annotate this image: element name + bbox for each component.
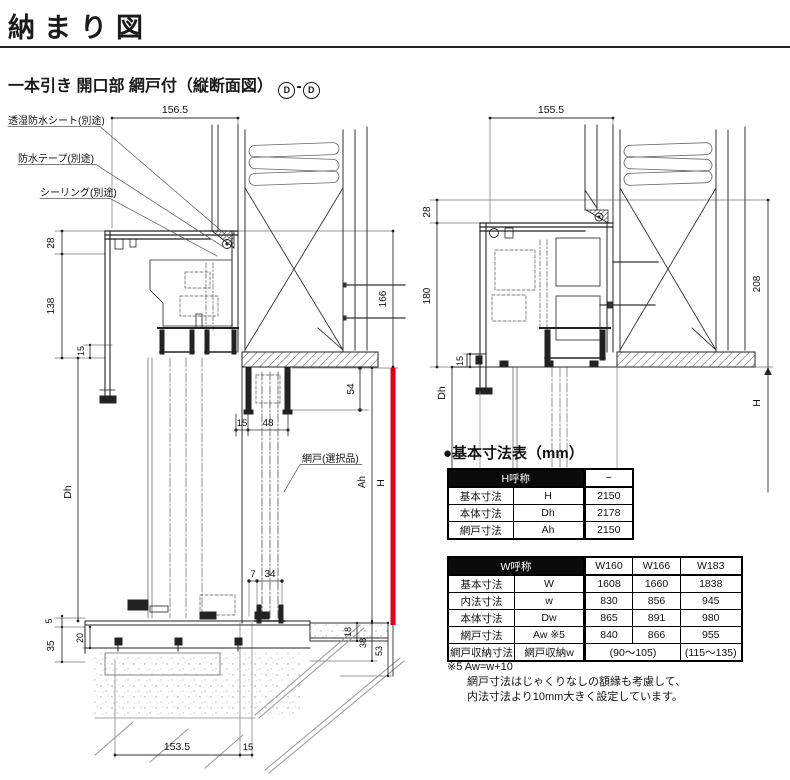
dim-label: 5 <box>44 618 54 623</box>
section-mark-d1: D <box>278 82 295 99</box>
table-row: 網戸寸法 Ah 2150 <box>448 522 633 540</box>
w-table-header: W呼称 <box>448 557 585 575</box>
row-label: 網戸寸法 <box>448 627 515 644</box>
title-rule <box>0 46 790 48</box>
dim-label: 138 <box>46 297 57 314</box>
dim-label: 54 <box>346 383 357 395</box>
row-symbol: H <box>513 487 584 505</box>
row-value: 980 <box>681 610 742 627</box>
dim-label: H <box>375 479 387 487</box>
left-screen-pocket <box>242 367 361 623</box>
row-symbol: 網戸収納w <box>515 644 585 662</box>
dim-label: 15 <box>455 356 465 366</box>
dim-label: 35 <box>46 640 57 652</box>
table-row: 本体寸法 Dh 2178 <box>448 505 633 522</box>
row-label: 本体寸法 <box>448 505 513 522</box>
footnote: ※5 Aw=w+10 網戸寸法はじゃくりなしの額縁も考慮して、 内法寸法より10… <box>447 660 686 705</box>
row-value: 2150 <box>584 487 633 505</box>
row-label: 内法寸法 <box>448 593 515 610</box>
table-row: 網戸収納寸法 網戸収納w (90〜105) (115〜135) <box>448 644 742 662</box>
h-dimension-table: H呼称 − 基本寸法 H 2150 本体寸法 Dh 2178 網戸寸法 Ah 2… <box>447 468 634 540</box>
row-value: 2150 <box>584 522 633 540</box>
dim-label: 20 <box>75 633 85 643</box>
dim-label: 28 <box>46 237 57 249</box>
row-value: 865 <box>585 610 633 627</box>
table-row: 基本寸法 H 2150 <box>448 487 633 505</box>
callout-seal-label: シーリング(別途) <box>40 186 117 199</box>
row-value: (90〜105) <box>585 644 681 662</box>
row-value: 856 <box>633 593 681 610</box>
page: 納まり図 一本引き 開口部 網戸付（縦断面図） D-D <box>0 0 790 780</box>
row-value: 955 <box>681 627 742 644</box>
right-diagram: 155.5 <box>422 104 773 492</box>
w-col-header: W183 <box>681 557 742 575</box>
row-label: 本体寸法 <box>448 610 515 627</box>
dim-label: Ah <box>357 476 368 488</box>
page-title: 納まり図 <box>8 6 152 45</box>
footnote-line: 網戸寸法はじゃくりなしの額縁も考慮して、 <box>447 675 686 690</box>
dimension-table-heading: ●基本寸法表（mm） <box>443 442 584 463</box>
table-row: 網戸寸法 Aw ※5 840 866 955 <box>448 627 742 644</box>
row-label: 網戸収納寸法 <box>448 644 515 662</box>
row-symbol: Aw ※5 <box>515 627 585 644</box>
dim-label: Dh <box>62 485 74 499</box>
w-col-header: W160 <box>585 557 633 575</box>
section-subtitle: 一本引き 開口部 網戸付（縦断面図） D-D <box>8 72 321 99</box>
callout-sheet-label: 透湿防水シート(別途) <box>8 114 105 127</box>
left-dim-width-top: 156.5 <box>111 104 240 119</box>
row-symbol: Dw <box>515 610 585 627</box>
table-row: 基本寸法 W 1608 1660 1838 <box>448 575 742 593</box>
dim-label: 34 <box>264 569 276 580</box>
subtitle-dash: - <box>296 78 301 95</box>
left-window-head <box>212 125 238 231</box>
dim-label: 28 <box>422 206 433 218</box>
row-value: 830 <box>585 593 633 610</box>
left-wall <box>245 127 405 352</box>
table-row: 本体寸法 Dw 865 891 980 <box>448 610 742 627</box>
row-value: 840 <box>585 627 633 644</box>
dim-label: 153.5 <box>164 741 190 753</box>
h-table-header: H呼称 <box>448 469 584 487</box>
row-value: 1838 <box>681 575 742 593</box>
dim-label: H <box>751 399 763 407</box>
row-symbol: w <box>515 593 585 610</box>
row-label: 基本寸法 <box>448 575 515 593</box>
callout-screen-label: 網戸(選択品) <box>302 452 359 465</box>
w-dimension-table: W呼称 W160 W166 W183 基本寸法 W 1608 1660 1838… <box>447 556 743 662</box>
row-label: 基本寸法 <box>448 487 513 505</box>
row-value: 2178 <box>584 505 633 522</box>
callout-tape-label: 防水テープ(別途) <box>18 152 94 165</box>
insulation <box>249 142 339 185</box>
left-diagram: 156.5 <box>8 104 405 773</box>
insulation <box>624 142 712 185</box>
row-value: (115〜135) <box>681 644 742 662</box>
right-floor-hatch <box>617 352 755 367</box>
dim-label: 48 <box>262 418 274 429</box>
h-dimension-red-bar <box>391 368 396 625</box>
left-screen-door <box>262 372 278 620</box>
row-symbol: W <box>515 575 585 593</box>
dim-label: 53 <box>374 646 384 656</box>
right-wall <box>600 127 745 352</box>
row-value: 1608 <box>585 575 633 593</box>
row-label: 網戸寸法 <box>448 522 513 540</box>
dim-label: 15 <box>237 418 248 429</box>
dim-label: 15 <box>76 346 86 356</box>
right-dim-width-top: 155.5 <box>489 104 615 119</box>
right-head-frame <box>452 210 617 394</box>
dim-label: 15 <box>243 742 254 753</box>
subtitle-text: 一本引き 開口部 網戸付（縦断面図） <box>8 78 273 95</box>
dim-label: 166 <box>378 290 389 307</box>
row-value: 1660 <box>633 575 681 593</box>
dim-label: 18 <box>343 627 353 637</box>
row-symbol: Ah <box>513 522 584 540</box>
h-table-col-header: − <box>584 469 633 487</box>
footnote-line: 内法寸法より10mm大きく設定しています。 <box>447 690 686 705</box>
dim-label: Dh <box>436 386 448 400</box>
dim-label: 7 <box>250 569 255 580</box>
right-dim-208-h <box>764 199 772 492</box>
dim-label: 38 <box>358 638 368 648</box>
left-floor-hatch <box>242 352 378 367</box>
row-value: 891 <box>633 610 681 627</box>
footnote-line: ※5 Aw=w+10 <box>447 660 686 675</box>
dim-label: 180 <box>422 287 433 304</box>
row-value: 866 <box>633 627 681 644</box>
left-dim-chain <box>61 230 92 664</box>
dim-label: 156.5 <box>162 104 188 116</box>
left-dim-width-bottom: 153.5 15 <box>114 741 254 756</box>
section-mark-d2: D <box>303 82 320 99</box>
row-symbol: Dh <box>513 505 584 522</box>
right-window-head <box>585 125 613 223</box>
row-value: 945 <box>681 593 742 610</box>
left-sliding-door <box>148 358 235 618</box>
left-head-frame <box>100 231 238 403</box>
w-col-header: W166 <box>633 557 681 575</box>
dim-label: 155.5 <box>538 104 564 116</box>
dim-label: 208 <box>752 275 763 292</box>
table-row: 内法寸法 w 830 856 945 <box>448 593 742 610</box>
